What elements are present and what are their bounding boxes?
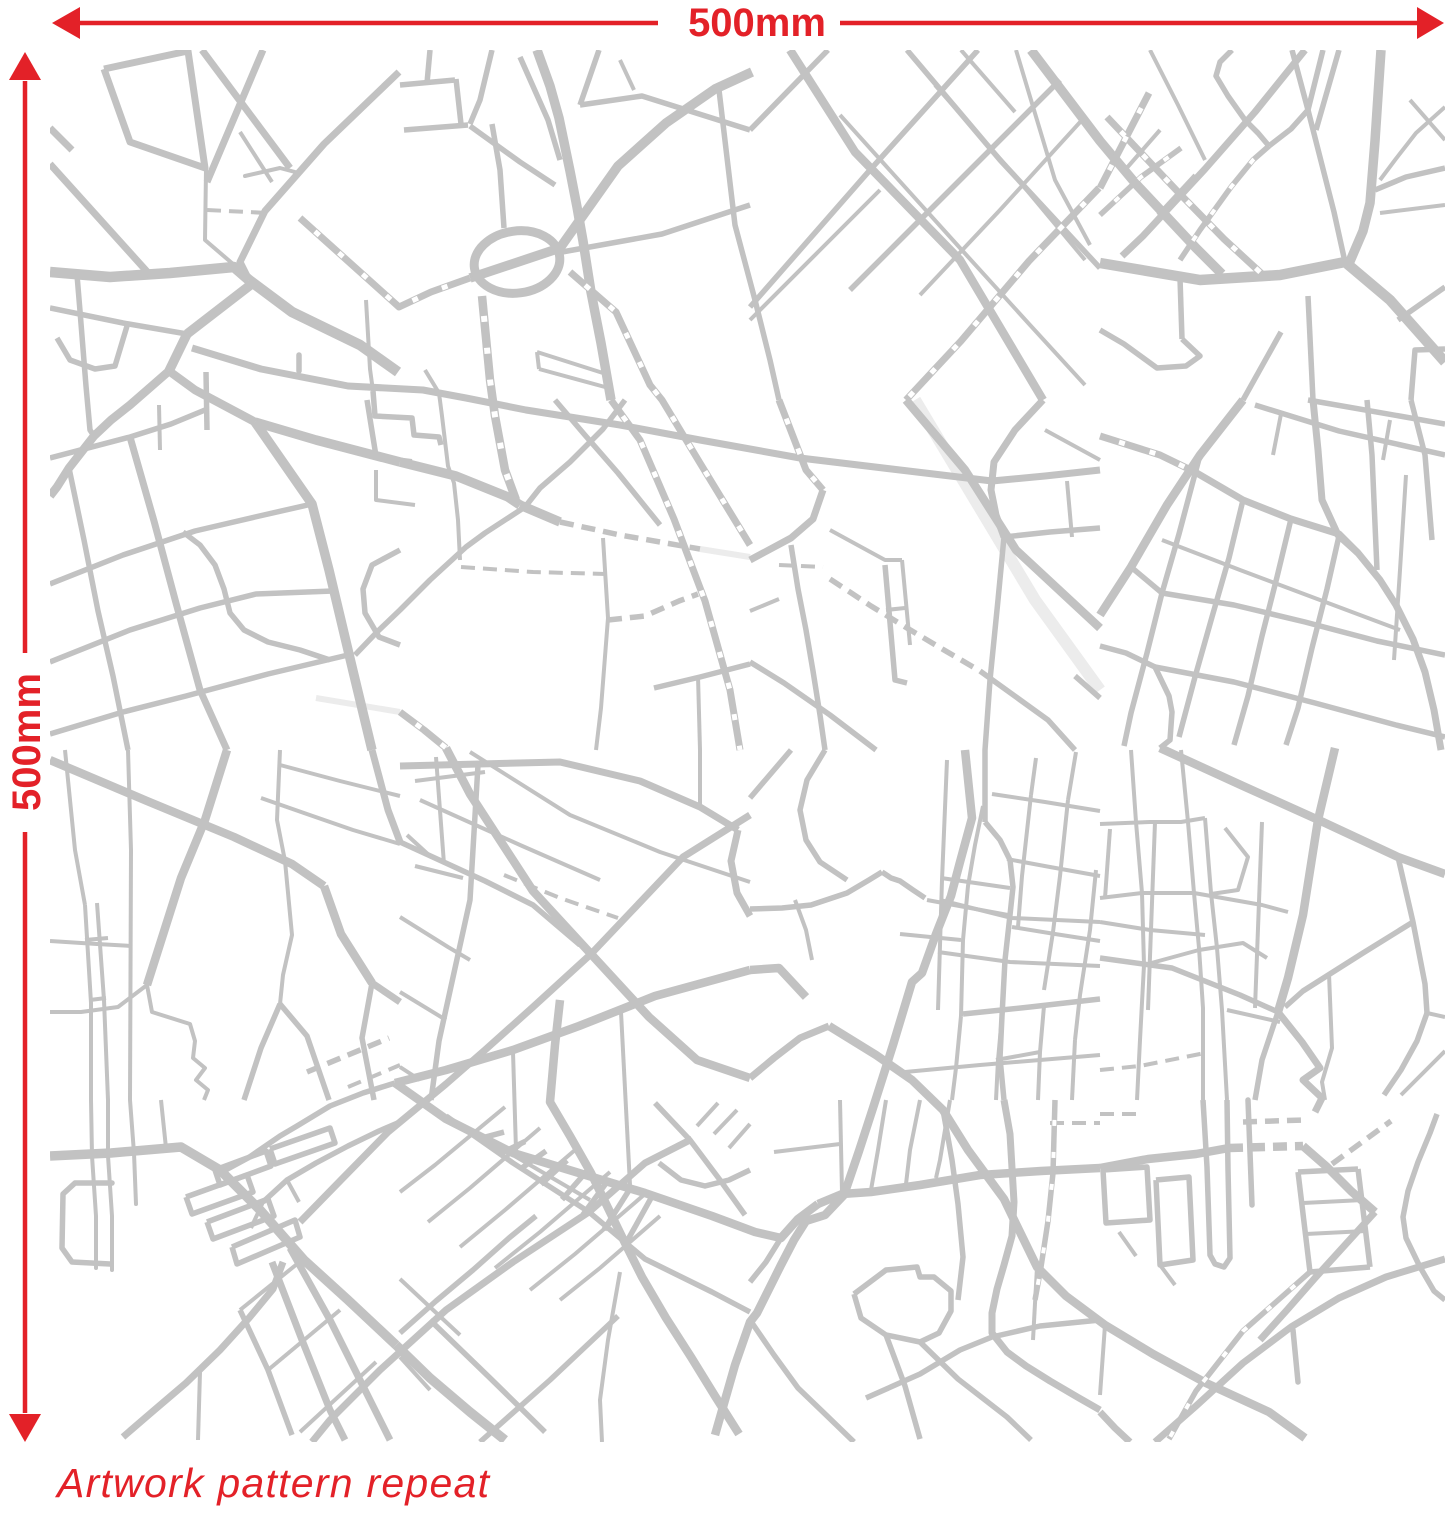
svg-text:Artwork pattern repeat: Artwork pattern repeat xyxy=(54,1460,491,1506)
svg-text:500mm: 500mm xyxy=(5,673,49,811)
svg-text:500mm: 500mm xyxy=(688,1,826,45)
